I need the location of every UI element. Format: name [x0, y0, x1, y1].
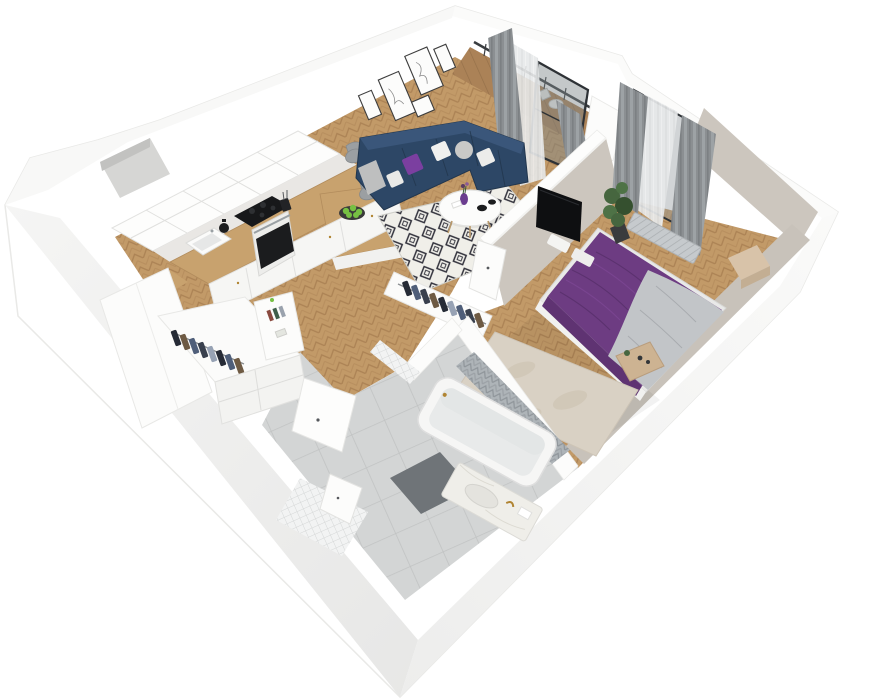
floor-plan-3d-render [0, 0, 874, 700]
bowl [488, 199, 496, 204]
bowl [477, 205, 487, 211]
pillow-gray-fluffy [455, 141, 473, 159]
apartment-render-svg [0, 0, 874, 700]
